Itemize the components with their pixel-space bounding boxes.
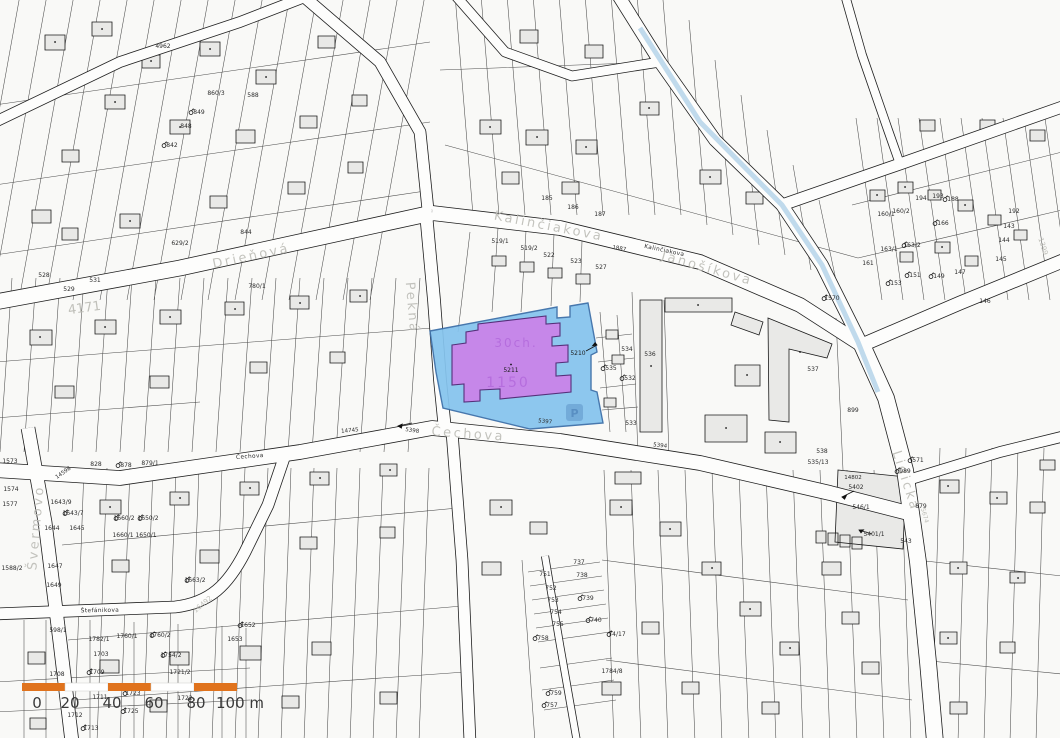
selected-parcel-number: 5211 — [503, 367, 518, 374]
parcel-number-label: 899 — [847, 407, 859, 414]
parcel-number-label: 153 — [890, 280, 902, 287]
parcel-number-label: 538 — [816, 448, 828, 455]
parcel-number-label: 758 — [537, 635, 549, 642]
parcel-number-label: 1703 — [93, 651, 108, 658]
parcel-number-label: 166 — [937, 220, 949, 227]
parcel-number-label: 193 — [932, 193, 944, 200]
scale-tick-label: 0 — [32, 694, 42, 712]
parcel-number-label: 519/2 — [520, 245, 537, 252]
parcel-number-label: 738 — [576, 572, 588, 579]
parcel-number-label: 878 — [120, 462, 132, 469]
parcel-number-label: 543 — [900, 538, 912, 545]
parcel-number-label: 848 — [180, 123, 192, 130]
parcel-number-label: 989 — [899, 468, 911, 475]
parcel-number-label: 527 — [595, 264, 607, 271]
watermark-text: 1150 — [486, 375, 530, 391]
parcel-number-label: 1577 — [2, 501, 17, 508]
watermark-text: 30ch. — [494, 336, 537, 350]
parcel-number-label: 828 — [90, 461, 102, 468]
parcel-number-label: 629/2 — [171, 240, 188, 247]
selected-building-dot — [510, 364, 512, 366]
parcel-number-label: 598/1 — [49, 627, 66, 634]
svg-text:P: P — [570, 407, 578, 420]
scale-tick-label: 20 — [60, 694, 79, 712]
parcel-number-label: 1644 — [44, 525, 59, 532]
parcel-number-label: 4962 — [155, 43, 170, 50]
parcel-number-label: 588 — [247, 92, 259, 99]
parcel-number-label: 145 — [995, 256, 1007, 263]
parcel-number-label: 1713 — [83, 725, 98, 732]
parcel-number-label: 187 — [594, 211, 606, 218]
parcel-number-label: 143 — [1003, 223, 1015, 230]
parcel-number-label: 737 — [573, 559, 585, 566]
parcel-number-label: 160/2 — [892, 208, 909, 215]
parking-icon: P — [566, 404, 583, 421]
parcel-number-label: 149 — [933, 273, 945, 280]
parcel-number-label: 1709 — [89, 669, 104, 676]
parcel-number-label: 536 — [644, 351, 656, 358]
parcel-number-label: 1574 — [3, 486, 18, 493]
parcel-number-label: 1643/9 — [50, 499, 71, 506]
parcel-number-label: 571 — [912, 457, 924, 464]
parcel-number-label: 755 — [552, 621, 564, 628]
parcel-number-label: 740 — [590, 617, 602, 624]
parcel-number-label: 1588/2 — [1, 565, 22, 572]
parcel-number-label: 1653 — [227, 636, 242, 643]
parcel-number-label: 879/1 — [141, 460, 158, 467]
parcel-number-label: 533 — [625, 420, 637, 427]
parcel-number-label: 842 — [166, 142, 178, 149]
parcel-number-label: 780/1 — [248, 283, 265, 290]
scale-tick-label: 40 — [102, 694, 121, 712]
parcel-number-label: 529 — [63, 286, 75, 293]
scale-tick-label: 100 m — [216, 694, 264, 712]
parcel-number-label: 759 — [550, 690, 562, 697]
parcel-number-label: 535 — [605, 365, 617, 372]
parcel-number-label: 147 — [954, 269, 966, 276]
parcel-number-label: 1650/1 — [135, 532, 156, 539]
parcel-number-label: 188 — [947, 196, 959, 203]
parcel-number-label: 1649 — [46, 582, 61, 589]
scale-segment — [108, 683, 151, 691]
parcel-number-label: 1570 — [824, 295, 839, 302]
parcel-number-label: 1652 — [240, 622, 255, 629]
map-viewport: 30ch. 1150 5211 5210 P DrieňováKalinčiak… — [0, 0, 1060, 738]
parcel-number-label: 532 — [624, 375, 636, 382]
parcel-number-label: 752 — [545, 585, 557, 592]
parcel-number-label: 523 — [570, 258, 582, 265]
parcel-number-label: 146 — [979, 298, 991, 305]
parcel-number-label: 757 — [546, 702, 558, 709]
parcel-number-label: 194 — [915, 195, 927, 202]
scale-segment — [65, 683, 108, 691]
parcel-number-label: 1645 — [69, 525, 84, 532]
parcel-number-label: 185 — [541, 195, 553, 202]
parcel-number-label: 1573 — [2, 458, 17, 465]
scale-segment — [22, 683, 65, 691]
parcel-number-label: 1708 — [49, 671, 64, 678]
parcel-number-label: 754 — [550, 609, 562, 616]
parcel-number-label: 844 — [240, 229, 252, 236]
parcel-number-label: 1782/1 — [88, 636, 109, 643]
parcel-number-label: 1721/2 — [169, 669, 190, 676]
parcel-number-label: 528 — [38, 272, 50, 279]
parcel-number-label: 537 — [807, 366, 819, 373]
parcel-number-label: 5402 — [848, 484, 863, 491]
parcel-number-label: 1725 — [123, 708, 138, 715]
parcel-number-label: 860/3 — [207, 90, 224, 97]
parcel-number-label: 151 — [909, 272, 921, 279]
cadastral-map[interactable]: 30ch. 1150 5211 5210 P DrieňováKalinčiak… — [0, 0, 1060, 738]
adjacent-parcel-number: 5210 — [570, 350, 585, 357]
road-number-label: 14802 — [844, 475, 862, 481]
street-name-label: Štefánikova — [81, 607, 120, 615]
parcel-number-label: 534 — [621, 346, 633, 353]
parcel-number-label: 1660/1 — [112, 532, 133, 539]
parcel-number-label: 1712 — [67, 712, 82, 719]
parcel-number-label: 144 — [998, 237, 1010, 244]
parcel-number-label: 751 — [539, 571, 551, 578]
parcel-number-label: 1784/8 — [601, 668, 622, 675]
parcel-number-label: 522 — [543, 252, 555, 259]
parcel-number-label: 186 — [567, 204, 579, 211]
parcel-number-label: 879 — [915, 503, 927, 510]
parcel-number-label: 739 — [582, 595, 594, 602]
parcel-number-label: 531 — [89, 277, 101, 284]
parcel-number-label: 849 — [193, 109, 205, 116]
parcel-number-label: 519/1 — [491, 238, 508, 245]
parcel-number-label: 5401/1 — [863, 531, 884, 538]
parcel-number-label: 163/1 — [880, 246, 897, 253]
scale-tick-label: 80 — [186, 694, 205, 712]
parcel-number-label: 535/13 — [807, 459, 828, 466]
scale-labels: 020406080100 m — [32, 694, 264, 712]
parcel-number-label: 1723 — [125, 690, 140, 697]
scale-segment — [194, 683, 237, 691]
parcel-number-label: 161 — [862, 260, 874, 267]
parcel-number-label: 753 — [547, 597, 559, 604]
scale-tick-label: 60 — [144, 694, 163, 712]
parcel-number-label: 546/1 — [852, 504, 869, 511]
parcel-number-label: 192 — [1008, 208, 1020, 215]
parcel-number-label: 1760/1 — [116, 633, 137, 640]
parcel-number-label: 1647 — [47, 563, 62, 570]
scale-segment — [151, 683, 194, 691]
